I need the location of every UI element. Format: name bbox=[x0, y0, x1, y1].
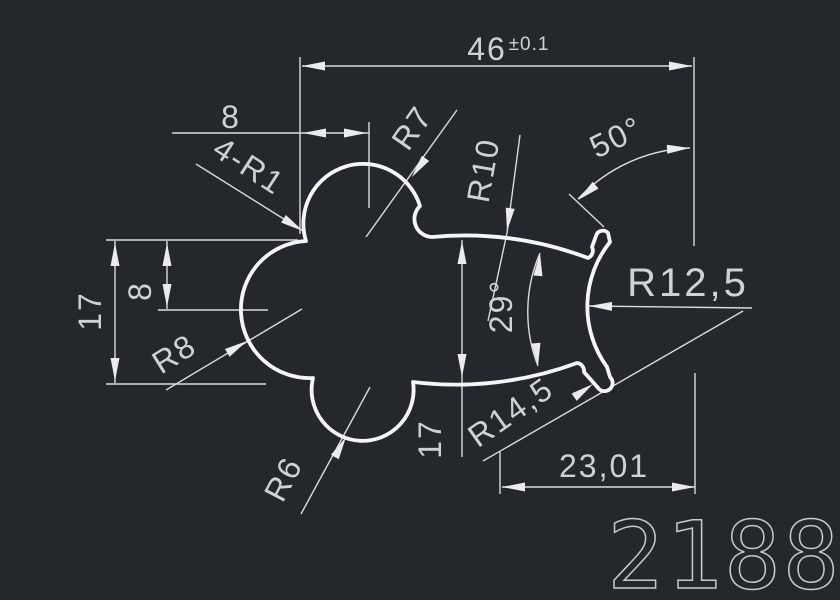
radius-r7-label: R7 bbox=[384, 99, 439, 156]
radius-r6-label: R6 bbox=[257, 451, 310, 508]
part-number: 2188 bbox=[607, 502, 840, 600]
radius-r10-label: R10 bbox=[460, 135, 507, 205]
dim-8-left-label: 8 bbox=[122, 281, 158, 301]
dim-17-neck-label: 17 bbox=[412, 419, 448, 459]
dim-46-tolerance: ±0.1 bbox=[509, 34, 550, 55]
arrow-r10 bbox=[503, 208, 515, 232]
angle-50-label: 50° bbox=[584, 109, 649, 165]
arrow-8top-right bbox=[344, 129, 367, 138]
arrow-50deg-left bbox=[575, 182, 598, 204]
cad-drawing-canvas: 46 ±0.1 8 4-R1 R7 R10 50° 17 8 R8 29° R1… bbox=[0, 0, 840, 600]
dimension-text: 46 ±0.1 8 4-R1 R7 R10 50° 17 8 R8 29° R1… bbox=[72, 31, 749, 507]
leader-50deg bbox=[569, 194, 604, 227]
arrow-17neck-top bbox=[458, 241, 467, 264]
arrow-8top-left bbox=[303, 129, 326, 138]
arrow-23-01-left bbox=[502, 483, 525, 492]
arrow-17neck-bottom bbox=[458, 354, 467, 377]
cad-drawing: 46 ±0.1 8 4-R1 R7 R10 50° 17 8 R8 29° R1… bbox=[0, 0, 840, 600]
dim-17-left-label: 17 bbox=[72, 291, 108, 331]
arrow-8left-bottom bbox=[163, 284, 172, 307]
dim-46-label: 46 bbox=[467, 31, 507, 67]
dim-8-top-label: 8 bbox=[221, 99, 241, 135]
arrow-8left-top bbox=[163, 243, 172, 266]
arrow-23-01-right bbox=[672, 483, 695, 492]
dim-23-01-label: 23,01 bbox=[559, 448, 649, 484]
arrow-r8 bbox=[225, 337, 249, 357]
angle-29-label: 29° bbox=[483, 279, 519, 333]
radius-r12-5-label: R12,5 bbox=[627, 261, 749, 305]
arrow-r12-5 bbox=[589, 302, 612, 311]
leader-r12-5 bbox=[589, 306, 752, 308]
arrow-50deg-right bbox=[667, 144, 690, 154]
arrow-17left-top bbox=[111, 243, 120, 266]
arrow-46-right bbox=[669, 62, 692, 71]
arrow-17left-bottom bbox=[111, 358, 120, 381]
arrow-46-left bbox=[302, 62, 325, 71]
arrow-r7 bbox=[408, 156, 429, 180]
note-4-r1-label: 4-R1 bbox=[207, 130, 291, 202]
